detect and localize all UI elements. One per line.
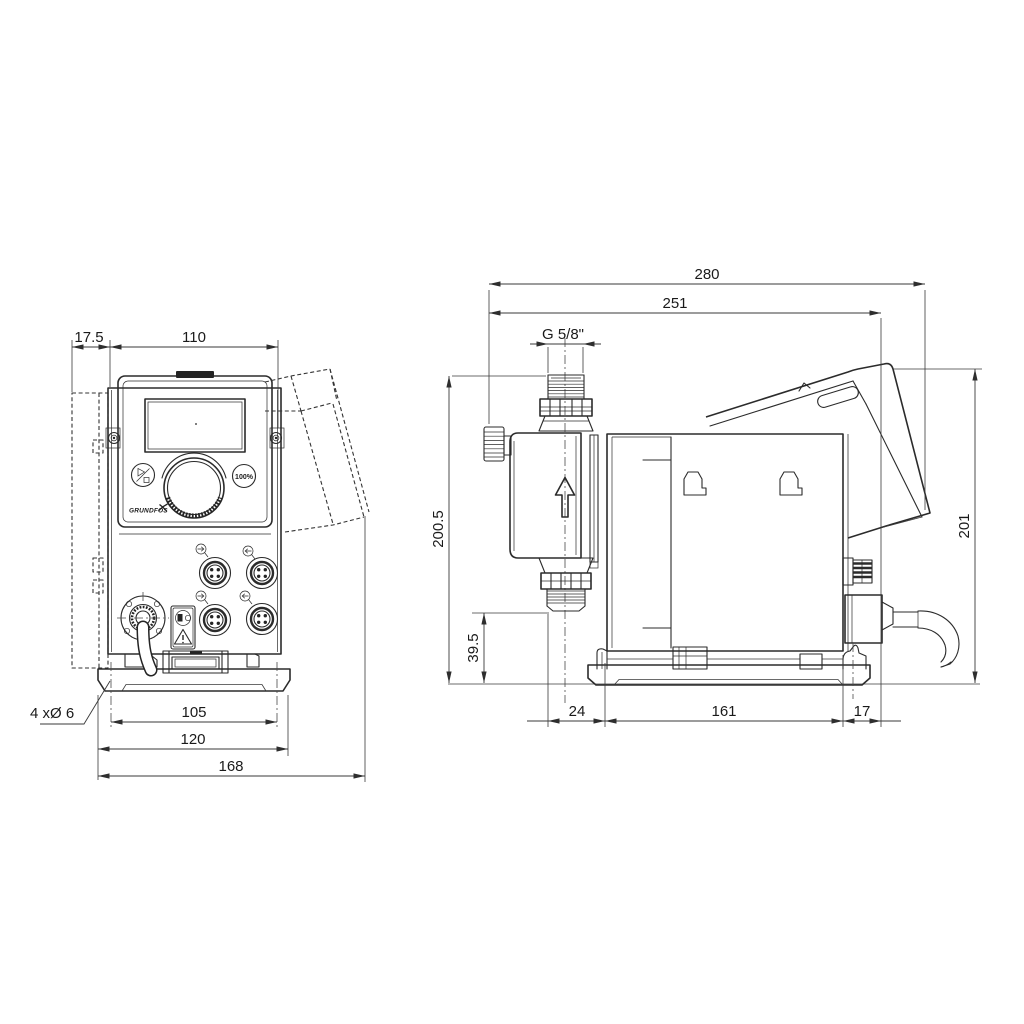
control-panel: 100% GRUNDFOS [106, 371, 284, 527]
clamp-tab [780, 472, 802, 495]
dim-base-depth: 161 [605, 703, 843, 721]
m12-connector [200, 558, 231, 589]
signal-icon [196, 544, 208, 557]
clamp-tab [684, 472, 706, 495]
dim-hole-spacing: 105 [111, 704, 277, 722]
svg-text:201: 201 [956, 513, 973, 538]
svg-text:110: 110 [182, 329, 206, 346]
brand-logo-text: GRUNDFOS [129, 508, 168, 515]
dim-height-to-connection: 200.5 [430, 376, 449, 683]
dim-overall-depth: 280 [489, 266, 925, 284]
svg-text:4 xØ 6: 4 xØ 6 [30, 705, 74, 722]
side-dimensions: 280 251 G 5/8" 200.5 [430, 266, 982, 727]
discharge-connection [539, 375, 593, 431]
svg-text:161: 161 [711, 703, 736, 720]
svg-text:120: 120 [180, 731, 205, 748]
dim-valve-clearance: 39.5 [465, 613, 484, 683]
dim-offset: 17.5 [72, 329, 110, 347]
boost-button-label: 100% [235, 474, 254, 481]
side-view: 280 251 G 5/8" 200.5 [430, 266, 982, 727]
m12-connectors [200, 558, 278, 636]
svg-text:280: 280 [694, 266, 719, 283]
svg-text:168: 168 [218, 758, 243, 775]
top-tab [176, 371, 214, 378]
svg-text:200.5: 200.5 [430, 510, 447, 548]
svg-text:251: 251 [662, 295, 687, 312]
svg-text:39.5: 39.5 [465, 633, 482, 662]
signal-icon [196, 591, 208, 604]
mains-cable [918, 611, 959, 667]
dim-overall-width: 168 [98, 758, 365, 776]
brand-logo: GRUNDFOS [129, 504, 168, 515]
start-stop-icon [137, 469, 150, 482]
click-wheel [164, 458, 224, 518]
svg-text:24: 24 [569, 703, 586, 720]
dosing-pump-dimension-drawing: 100% GRUNDFOS [0, 0, 1024, 1024]
warning-label [171, 606, 195, 649]
dim-rear-overhang: 17 [843, 703, 901, 721]
power-cable-front [143, 627, 151, 670]
front-view: 100% GRUNDFOS [30, 329, 369, 782]
m12-connector [247, 604, 278, 635]
signal-icon [240, 591, 252, 604]
rear-plug [843, 558, 872, 585]
tilted-control-cube [706, 364, 930, 538]
panel-side-screws [106, 428, 284, 448]
dosing-head [510, 433, 581, 558]
wall-plate-hidden [72, 393, 108, 668]
dim-plate-width: 120 [98, 731, 288, 749]
start-stop-button [132, 464, 155, 487]
head-flange [590, 435, 598, 568]
boost-100-button: 100% [233, 465, 256, 488]
svg-text:105: 105 [181, 704, 206, 721]
display-screen [145, 399, 245, 452]
cable-gland-side [845, 595, 959, 667]
motor-housing [607, 434, 848, 651]
svg-text:G 5/8": G 5/8" [542, 326, 584, 343]
suction-connection [539, 558, 593, 611]
svg-text:17: 17 [854, 703, 871, 720]
front-dimensions: 17.5 110 105 120 168 4 xØ 6 [30, 329, 365, 782]
signal-icon [243, 546, 255, 559]
m12-connector [200, 605, 231, 636]
technical-drawing-page: 100% GRUNDFOS [0, 0, 1024, 1024]
vent-valve-knob [484, 427, 511, 461]
handle-recess [816, 385, 860, 409]
dim-housing-depth: 251 [489, 295, 881, 313]
dim-overall-height: 201 [956, 369, 975, 683]
m12-connector [247, 558, 278, 589]
svg-text:17.5: 17.5 [74, 329, 103, 346]
dim-front-overhang: 24 [527, 703, 605, 721]
dim-connection-thread: G 5/8" [530, 326, 601, 373]
dim-width: 110 [110, 329, 278, 347]
